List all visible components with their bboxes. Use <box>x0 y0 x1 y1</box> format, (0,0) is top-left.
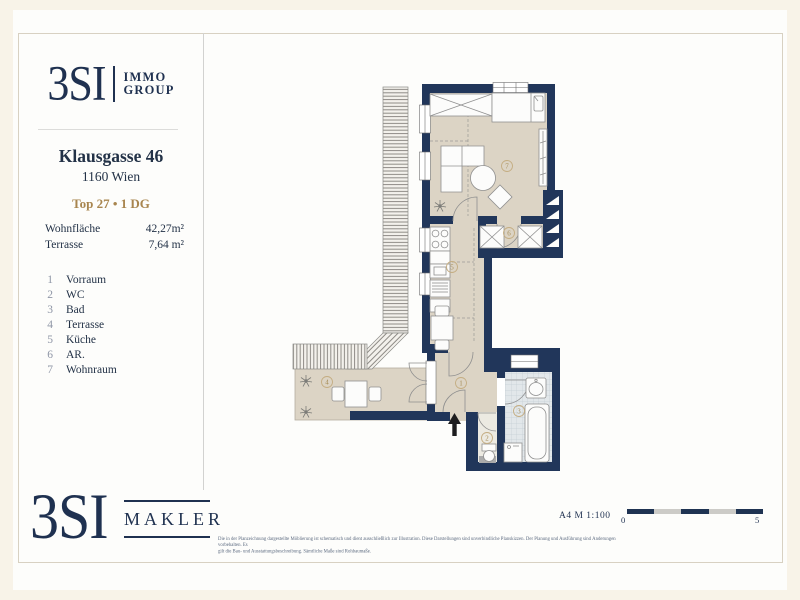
area-row-wohnflaeche: Wohnfläche 42,27m² <box>45 221 184 237</box>
svg-text:5: 5 <box>450 264 454 272</box>
floor-plan: 1 2 3 4 5 6 7 <box>285 76 575 480</box>
bath-door-opening <box>497 378 505 406</box>
scale-segment <box>681 509 708 514</box>
scale-bar <box>627 509 763 514</box>
window-top <box>493 83 528 93</box>
legend-row: 4Terrasse <box>45 318 184 333</box>
header-divider <box>38 129 178 130</box>
disclaimer-line-1: Die in der Planzeichnung dargestellte Mö… <box>218 536 640 548</box>
legend-number: 2 <box>45 288 53 303</box>
svg-text:6: 6 <box>507 230 511 238</box>
area-value: 42,27m² <box>146 221 184 237</box>
scale-start-label: 0 <box>621 515 625 525</box>
legend-row: 2WC <box>45 288 184 303</box>
toilet-symbol <box>482 444 496 462</box>
legend-number: 3 <box>45 303 53 318</box>
unit-label: Top 27 • 1 DG <box>18 196 204 212</box>
legend-row: 3Bad <box>45 303 184 318</box>
window-left-3 <box>420 228 431 252</box>
svg-text:1: 1 <box>459 380 463 388</box>
address-city: 1160 Wien <box>18 169 204 185</box>
legend-name: Bad <box>66 303 85 318</box>
area-row-terrasse: Terrasse 7,64 m² <box>45 237 184 253</box>
scale-segment <box>627 509 654 514</box>
legend-name: Wohnraum <box>66 363 117 378</box>
wardrobe-symbol <box>430 94 492 116</box>
address-street: Klausgasse 46 <box>18 146 204 167</box>
svg-text:2: 2 <box>485 435 489 443</box>
brand-logo-3si: 3SI <box>47 59 105 108</box>
cabinet-symbol <box>518 226 542 248</box>
svg-text:4: 4 <box>325 379 329 387</box>
radiator-symbol <box>539 129 547 186</box>
brand-makler-label: MAKLER <box>124 510 210 528</box>
svg-text:7: 7 <box>505 163 509 171</box>
legend-row: 7Wohnraum <box>45 363 184 378</box>
legend-number: 5 <box>45 333 53 348</box>
brand-logo-bottom: 3SI <box>30 484 108 549</box>
sink-symbol <box>526 378 546 398</box>
floorplan-page: { "brand_top": {"name": "3SI", "line1": … <box>0 0 800 600</box>
legend-number: 7 <box>45 363 53 378</box>
room-legend: 1Vorraum 2WC 3Bad 4Terrasse 5Küche 6AR. … <box>45 273 184 378</box>
legend-name: Küche <box>66 333 96 348</box>
legend-number: 1 <box>45 273 53 288</box>
cabinet-symbol <box>480 226 504 248</box>
panel-divider <box>203 33 204 490</box>
disclaimer-text: Die in der Planzeichnung dargestellte Mö… <box>218 536 640 554</box>
legend-name: Vorraum <box>66 273 106 288</box>
washing-machine-symbol <box>504 443 522 462</box>
roof-hatch-band <box>293 87 408 369</box>
legend-row: 5Küche <box>45 333 184 348</box>
scale-format-label: A4 M 1:100 <box>559 511 610 521</box>
scale-segment <box>709 509 736 514</box>
legend-row: 1Vorraum <box>45 273 184 288</box>
area-label: Terrasse <box>45 237 83 253</box>
window-left-2 <box>420 152 431 180</box>
brand-logo-subtitle: IMMO GROUP <box>123 71 174 98</box>
legend-number: 4 <box>45 318 53 333</box>
bathtub-symbol <box>525 404 549 462</box>
area-table: Wohnfläche 42,27m² Terrasse 7,64 m² <box>45 221 184 253</box>
legend-name: WC <box>66 288 85 303</box>
disclaimer-line-2: gilt die Bau- und Ausstattungsbeschreibu… <box>218 548 640 554</box>
scale-segment <box>736 509 763 514</box>
legend-row: 6AR. <box>45 348 184 363</box>
window-left-1 <box>420 105 431 133</box>
area-label: Wohnfläche <box>45 221 100 237</box>
logo-separator <box>113 66 115 102</box>
legend-number: 6 <box>45 348 53 363</box>
legend-name: AR. <box>66 348 85 363</box>
legend-name: Terrasse <box>66 318 104 333</box>
brand-logo-top: 3SI IMMO GROUP <box>40 56 182 112</box>
terrace-door-opening <box>426 361 436 404</box>
window-left-4 <box>420 273 431 295</box>
scale-segment <box>654 509 681 514</box>
bed-symbol <box>492 93 545 122</box>
scale-end-label: 5 <box>755 515 759 525</box>
area-value: 7,64 m² <box>149 237 184 253</box>
window-bath <box>511 355 538 368</box>
brand-makler-block: MAKLER <box>124 500 210 538</box>
svg-text:3: 3 <box>517 408 521 416</box>
coffee-table-symbol <box>471 166 496 191</box>
